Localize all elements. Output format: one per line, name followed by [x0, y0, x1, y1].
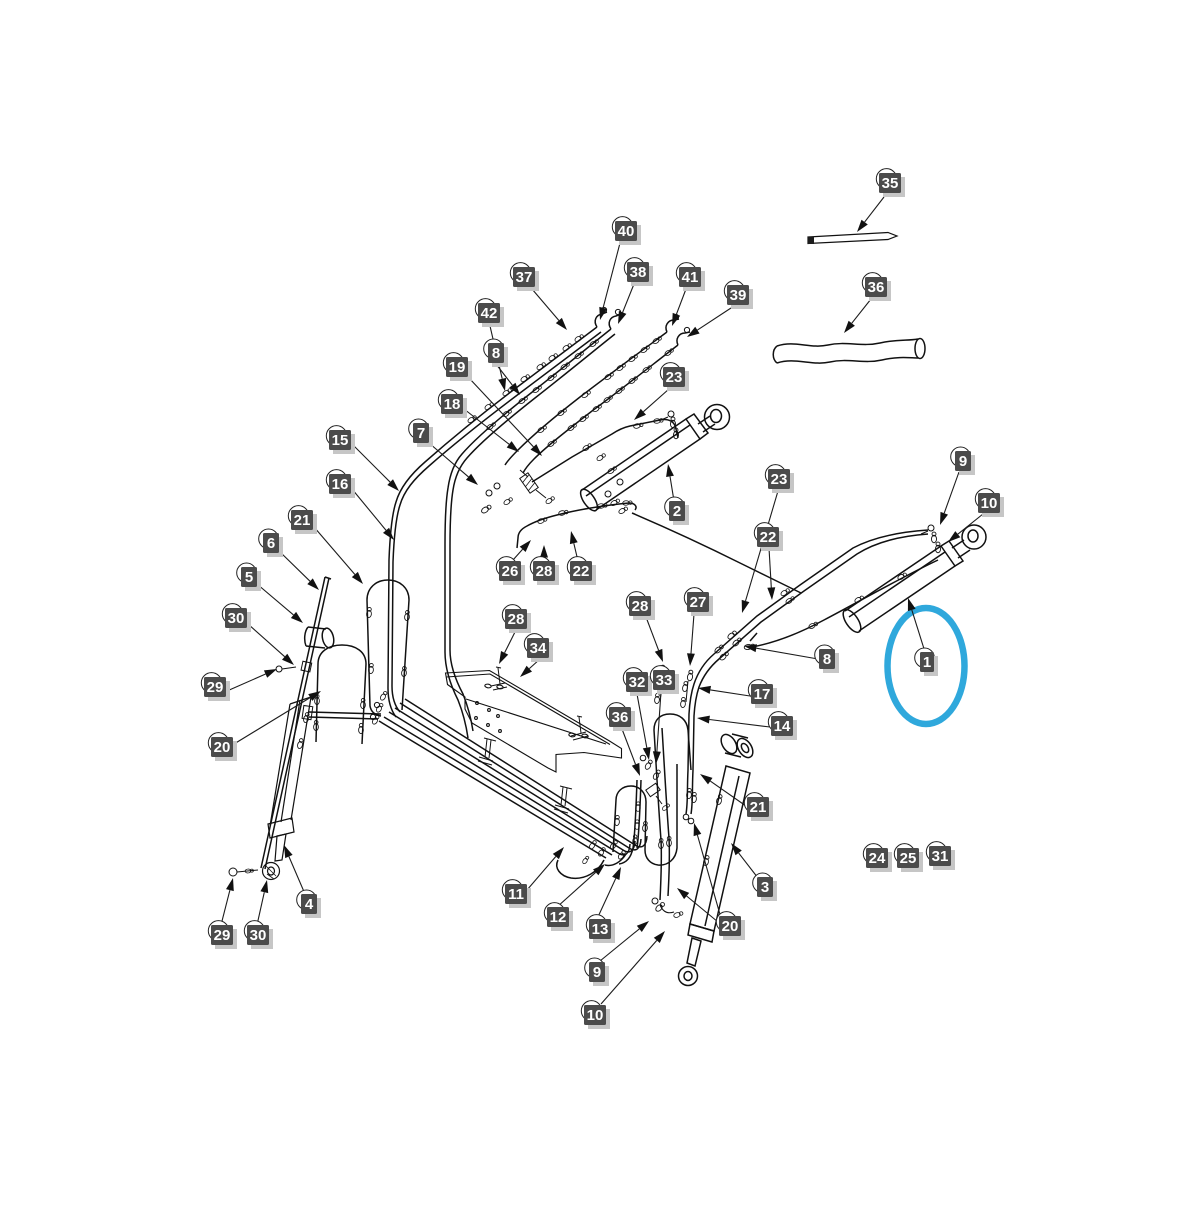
svg-text:28: 28 [536, 563, 553, 580]
svg-text:34: 34 [530, 640, 547, 657]
svg-text:15: 15 [332, 432, 349, 449]
svg-text:21: 21 [750, 799, 767, 816]
svg-text:36: 36 [612, 709, 629, 726]
svg-text:4: 4 [305, 896, 314, 913]
svg-text:23: 23 [666, 369, 683, 386]
svg-text:28: 28 [508, 611, 525, 628]
svg-text:20: 20 [722, 918, 739, 935]
svg-text:9: 9 [593, 964, 601, 981]
svg-text:27: 27 [690, 594, 707, 611]
svg-text:29: 29 [214, 927, 231, 944]
svg-text:32: 32 [629, 674, 646, 691]
svg-text:18: 18 [444, 396, 461, 413]
svg-text:9: 9 [959, 453, 967, 470]
svg-text:8: 8 [823, 651, 831, 668]
svg-text:22: 22 [760, 529, 777, 546]
svg-text:24: 24 [869, 850, 886, 867]
svg-text:6: 6 [267, 535, 275, 552]
svg-text:11: 11 [508, 886, 524, 903]
svg-text:36: 36 [868, 279, 885, 296]
svg-text:17: 17 [754, 686, 771, 703]
svg-text:30: 30 [250, 927, 267, 944]
svg-text:10: 10 [981, 495, 998, 512]
svg-text:1: 1 [923, 654, 931, 671]
svg-text:28: 28 [632, 598, 649, 615]
svg-text:41: 41 [682, 269, 699, 286]
svg-text:21: 21 [294, 512, 311, 529]
svg-text:7: 7 [417, 425, 425, 442]
svg-text:23: 23 [771, 471, 788, 488]
svg-text:37: 37 [516, 269, 533, 286]
svg-text:42: 42 [481, 305, 498, 322]
svg-text:40: 40 [618, 223, 635, 240]
svg-text:22: 22 [573, 563, 590, 580]
svg-text:30: 30 [228, 610, 245, 627]
svg-text:10: 10 [587, 1007, 604, 1024]
svg-text:3: 3 [761, 879, 769, 896]
svg-text:5: 5 [245, 569, 253, 586]
svg-text:12: 12 [550, 909, 567, 926]
svg-text:20: 20 [214, 739, 231, 756]
svg-text:35: 35 [882, 175, 899, 192]
svg-text:16: 16 [332, 476, 349, 493]
svg-text:33: 33 [656, 672, 673, 689]
svg-text:31: 31 [932, 848, 949, 865]
svg-text:13: 13 [592, 921, 609, 938]
svg-text:39: 39 [730, 287, 747, 304]
svg-text:25: 25 [900, 850, 917, 867]
svg-text:2: 2 [673, 503, 681, 520]
svg-text:26: 26 [502, 563, 519, 580]
svg-text:29: 29 [207, 679, 224, 696]
svg-text:19: 19 [449, 359, 466, 376]
svg-text:14: 14 [774, 718, 791, 735]
svg-text:8: 8 [492, 345, 500, 362]
svg-text:38: 38 [630, 264, 647, 281]
